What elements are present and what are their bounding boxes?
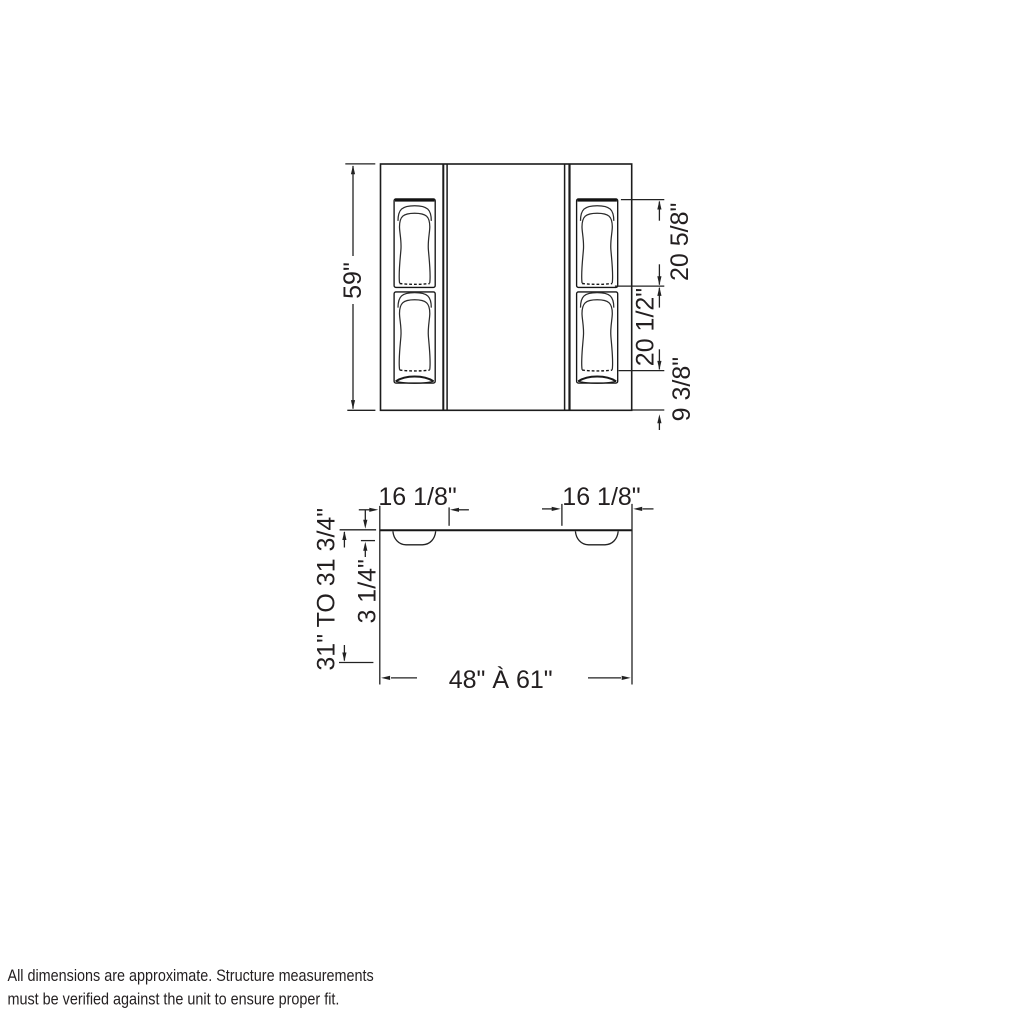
svg-text:48" À 61": 48" À 61" <box>449 665 553 694</box>
svg-text:20 5/8": 20 5/8" <box>666 203 694 281</box>
svg-text:3 1/4": 3 1/4" <box>353 559 381 623</box>
svg-text:16 1/8": 16 1/8" <box>378 483 456 511</box>
svg-text:must be verified against the u: must be verified against the unit to ens… <box>8 991 340 1009</box>
svg-text:All dimensions are approximate: All dimensions are approximate. Structur… <box>8 967 374 985</box>
svg-text:9 3/8": 9 3/8" <box>668 357 696 421</box>
svg-text:31" TO 31 3/4": 31" TO 31 3/4" <box>312 508 340 671</box>
svg-text:20 1/2": 20 1/2" <box>632 288 660 366</box>
svg-text:59": 59" <box>339 262 367 299</box>
svg-text:16 1/8": 16 1/8" <box>562 483 640 511</box>
